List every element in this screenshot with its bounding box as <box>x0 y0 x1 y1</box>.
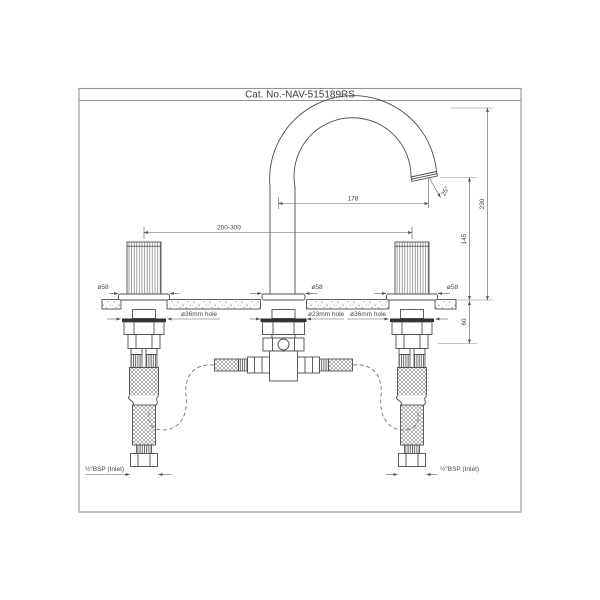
spout-neck <box>272 335 295 339</box>
angle-slant-leg <box>430 179 441 198</box>
spout-inner-curve <box>294 118 411 299</box>
crimp-sleeve <box>320 359 329 371</box>
hole36-left-label: ø36mm hole <box>181 311 218 318</box>
dim-spout-reach-label: 178 <box>348 196 359 203</box>
dim-outlet-height-label: 145 <box>461 233 468 244</box>
hole36-right-label: ø36mm hole <box>350 311 387 318</box>
dia58-right-label: ø58 <box>447 284 459 291</box>
tee-body <box>270 351 298 381</box>
drawing-page: Cat. No.-NAV-515189RS <box>0 0 600 600</box>
catalog-number: Cat. No.-NAV-515189RS <box>245 90 355 101</box>
tee-left-hose-stub <box>215 359 239 371</box>
dia58-center-label: ø58 <box>311 284 323 291</box>
dim-overall-height-label: 230 <box>479 198 486 209</box>
right-handle-assembly <box>387 242 438 467</box>
dim-handle-centers-label: 200-300 <box>217 225 241 232</box>
spout-washer <box>261 319 307 323</box>
tee-right-hose-stub <box>329 359 353 371</box>
crimp-sleeve <box>239 359 248 371</box>
union-nut <box>263 338 304 351</box>
tee-left-union <box>248 357 270 373</box>
spout-base-flange <box>262 294 305 300</box>
inlet-right-label: ½"BSP (Inlet) <box>440 465 479 473</box>
dia58-left-label: ø58 <box>97 284 109 291</box>
spout-locknut <box>263 322 305 335</box>
inlet-left-label: ½"BSP (Inlet) <box>85 465 124 473</box>
spout-shank <box>272 310 295 319</box>
tee-right-union <box>298 357 320 373</box>
hole23-center-label: ø23mm hole <box>308 311 345 318</box>
dim-counter-thickness-label: 60 <box>461 318 468 326</box>
flow-angle-label: 25° <box>439 184 451 197</box>
technical-drawing: Cat. No.-NAV-515189RS <box>0 0 600 600</box>
left-handle-assembly <box>119 242 170 467</box>
